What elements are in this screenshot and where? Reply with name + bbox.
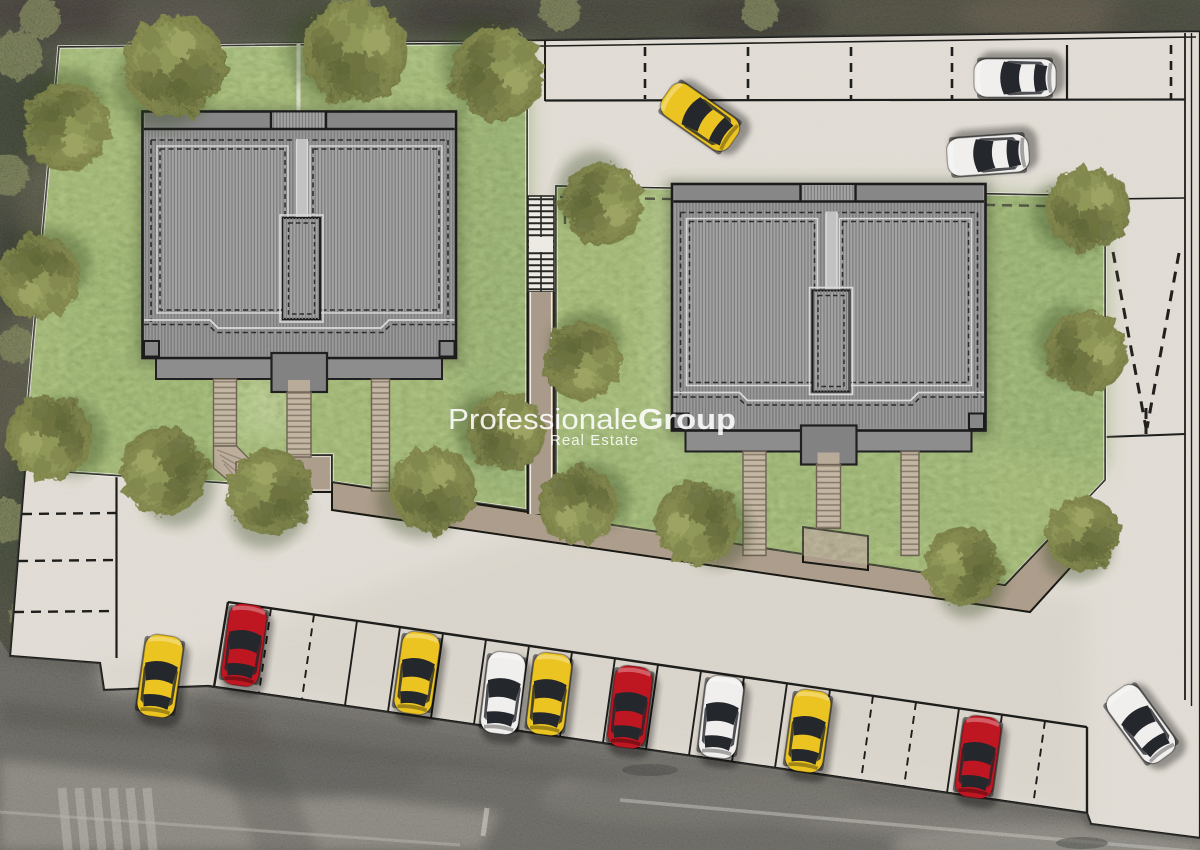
svg-text:Real Estate: Real Estate [550,432,638,449]
